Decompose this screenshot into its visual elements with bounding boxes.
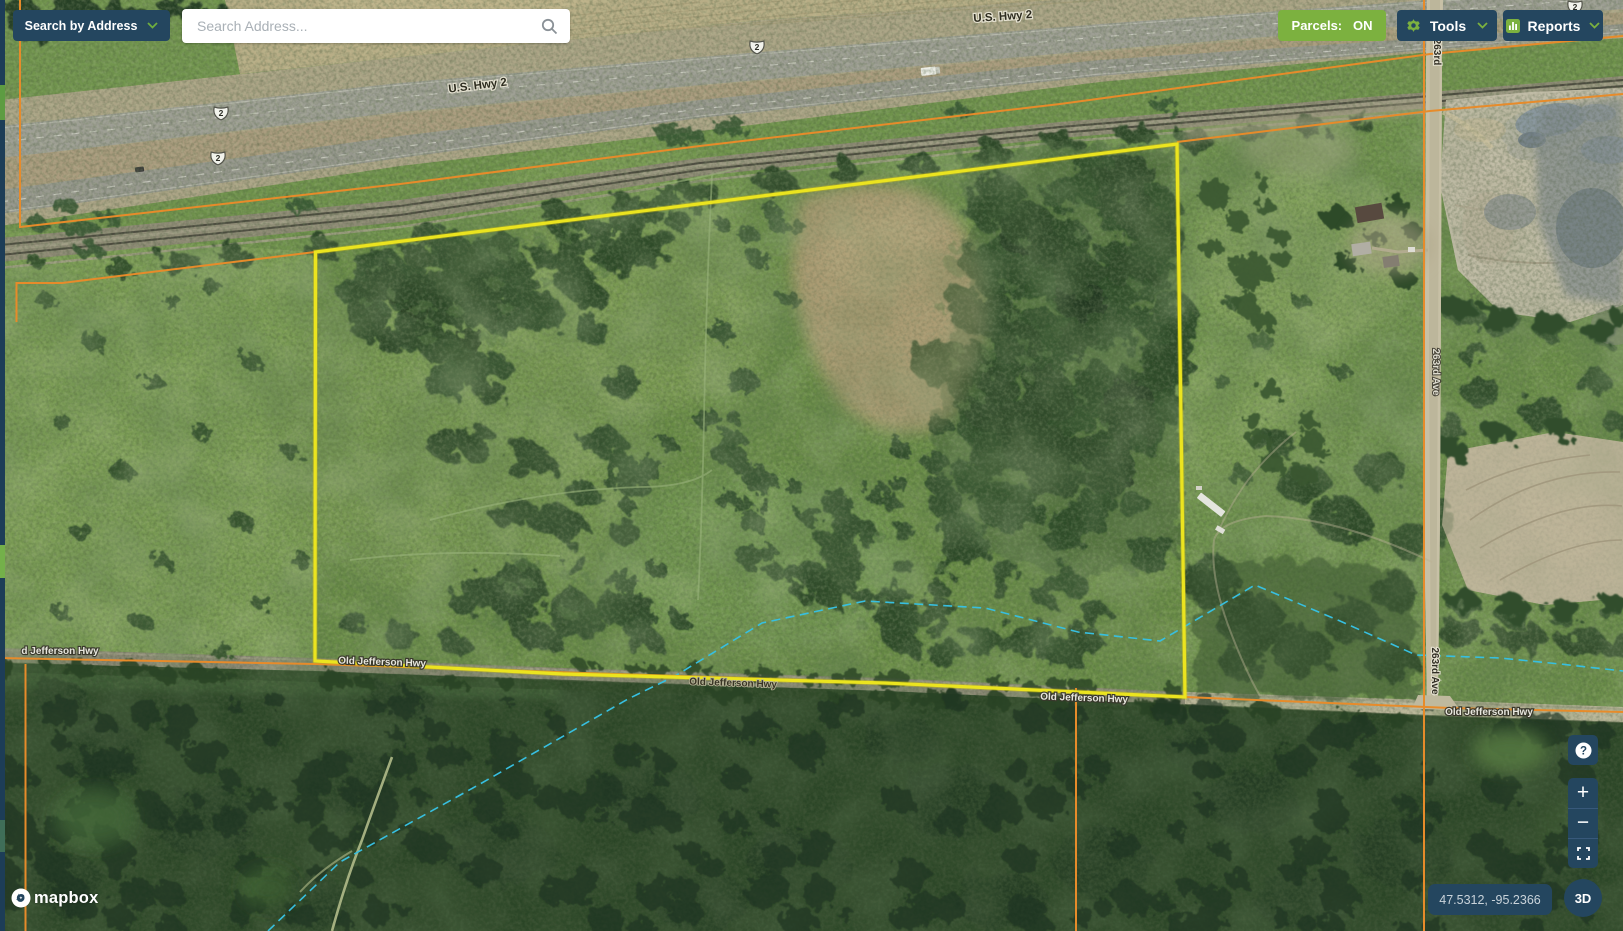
svg-text:?: ? — [1579, 745, 1586, 757]
